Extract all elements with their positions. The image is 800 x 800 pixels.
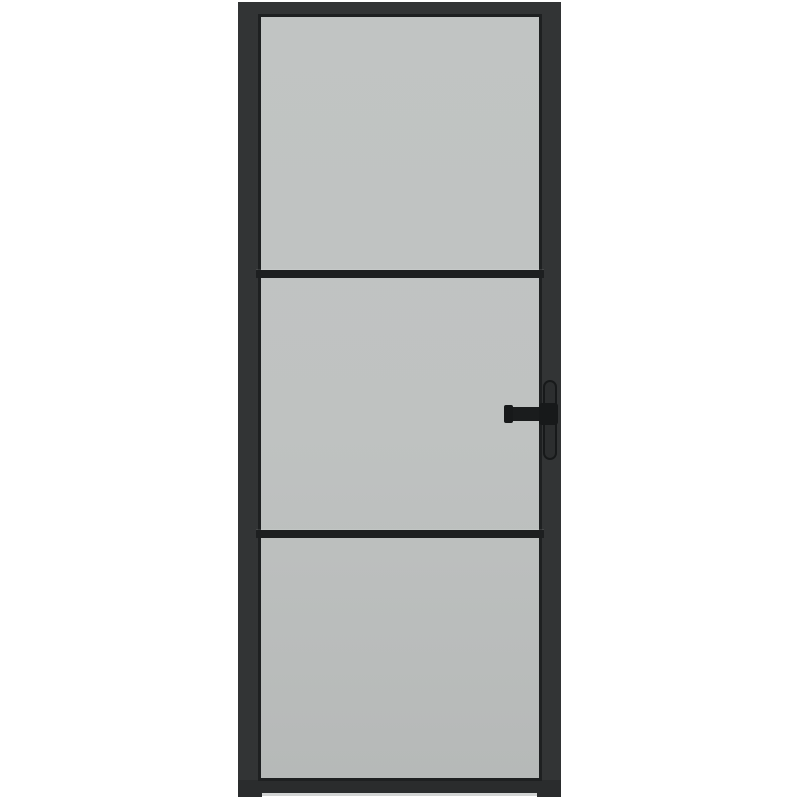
glazing-bar-upper [256, 270, 544, 278]
door-left-stile-foot [238, 789, 262, 797]
handle-grip-end-cap [504, 405, 513, 423]
door [238, 2, 561, 793]
handle-hub [539, 403, 558, 425]
glazing-bar-lower [256, 530, 544, 538]
product-photo-background [0, 0, 800, 800]
frosted-glass-panel [258, 14, 542, 781]
floor-shadow [240, 793, 559, 796]
door-right-stile-foot [537, 789, 561, 797]
door-bottom-rail [238, 780, 561, 793]
